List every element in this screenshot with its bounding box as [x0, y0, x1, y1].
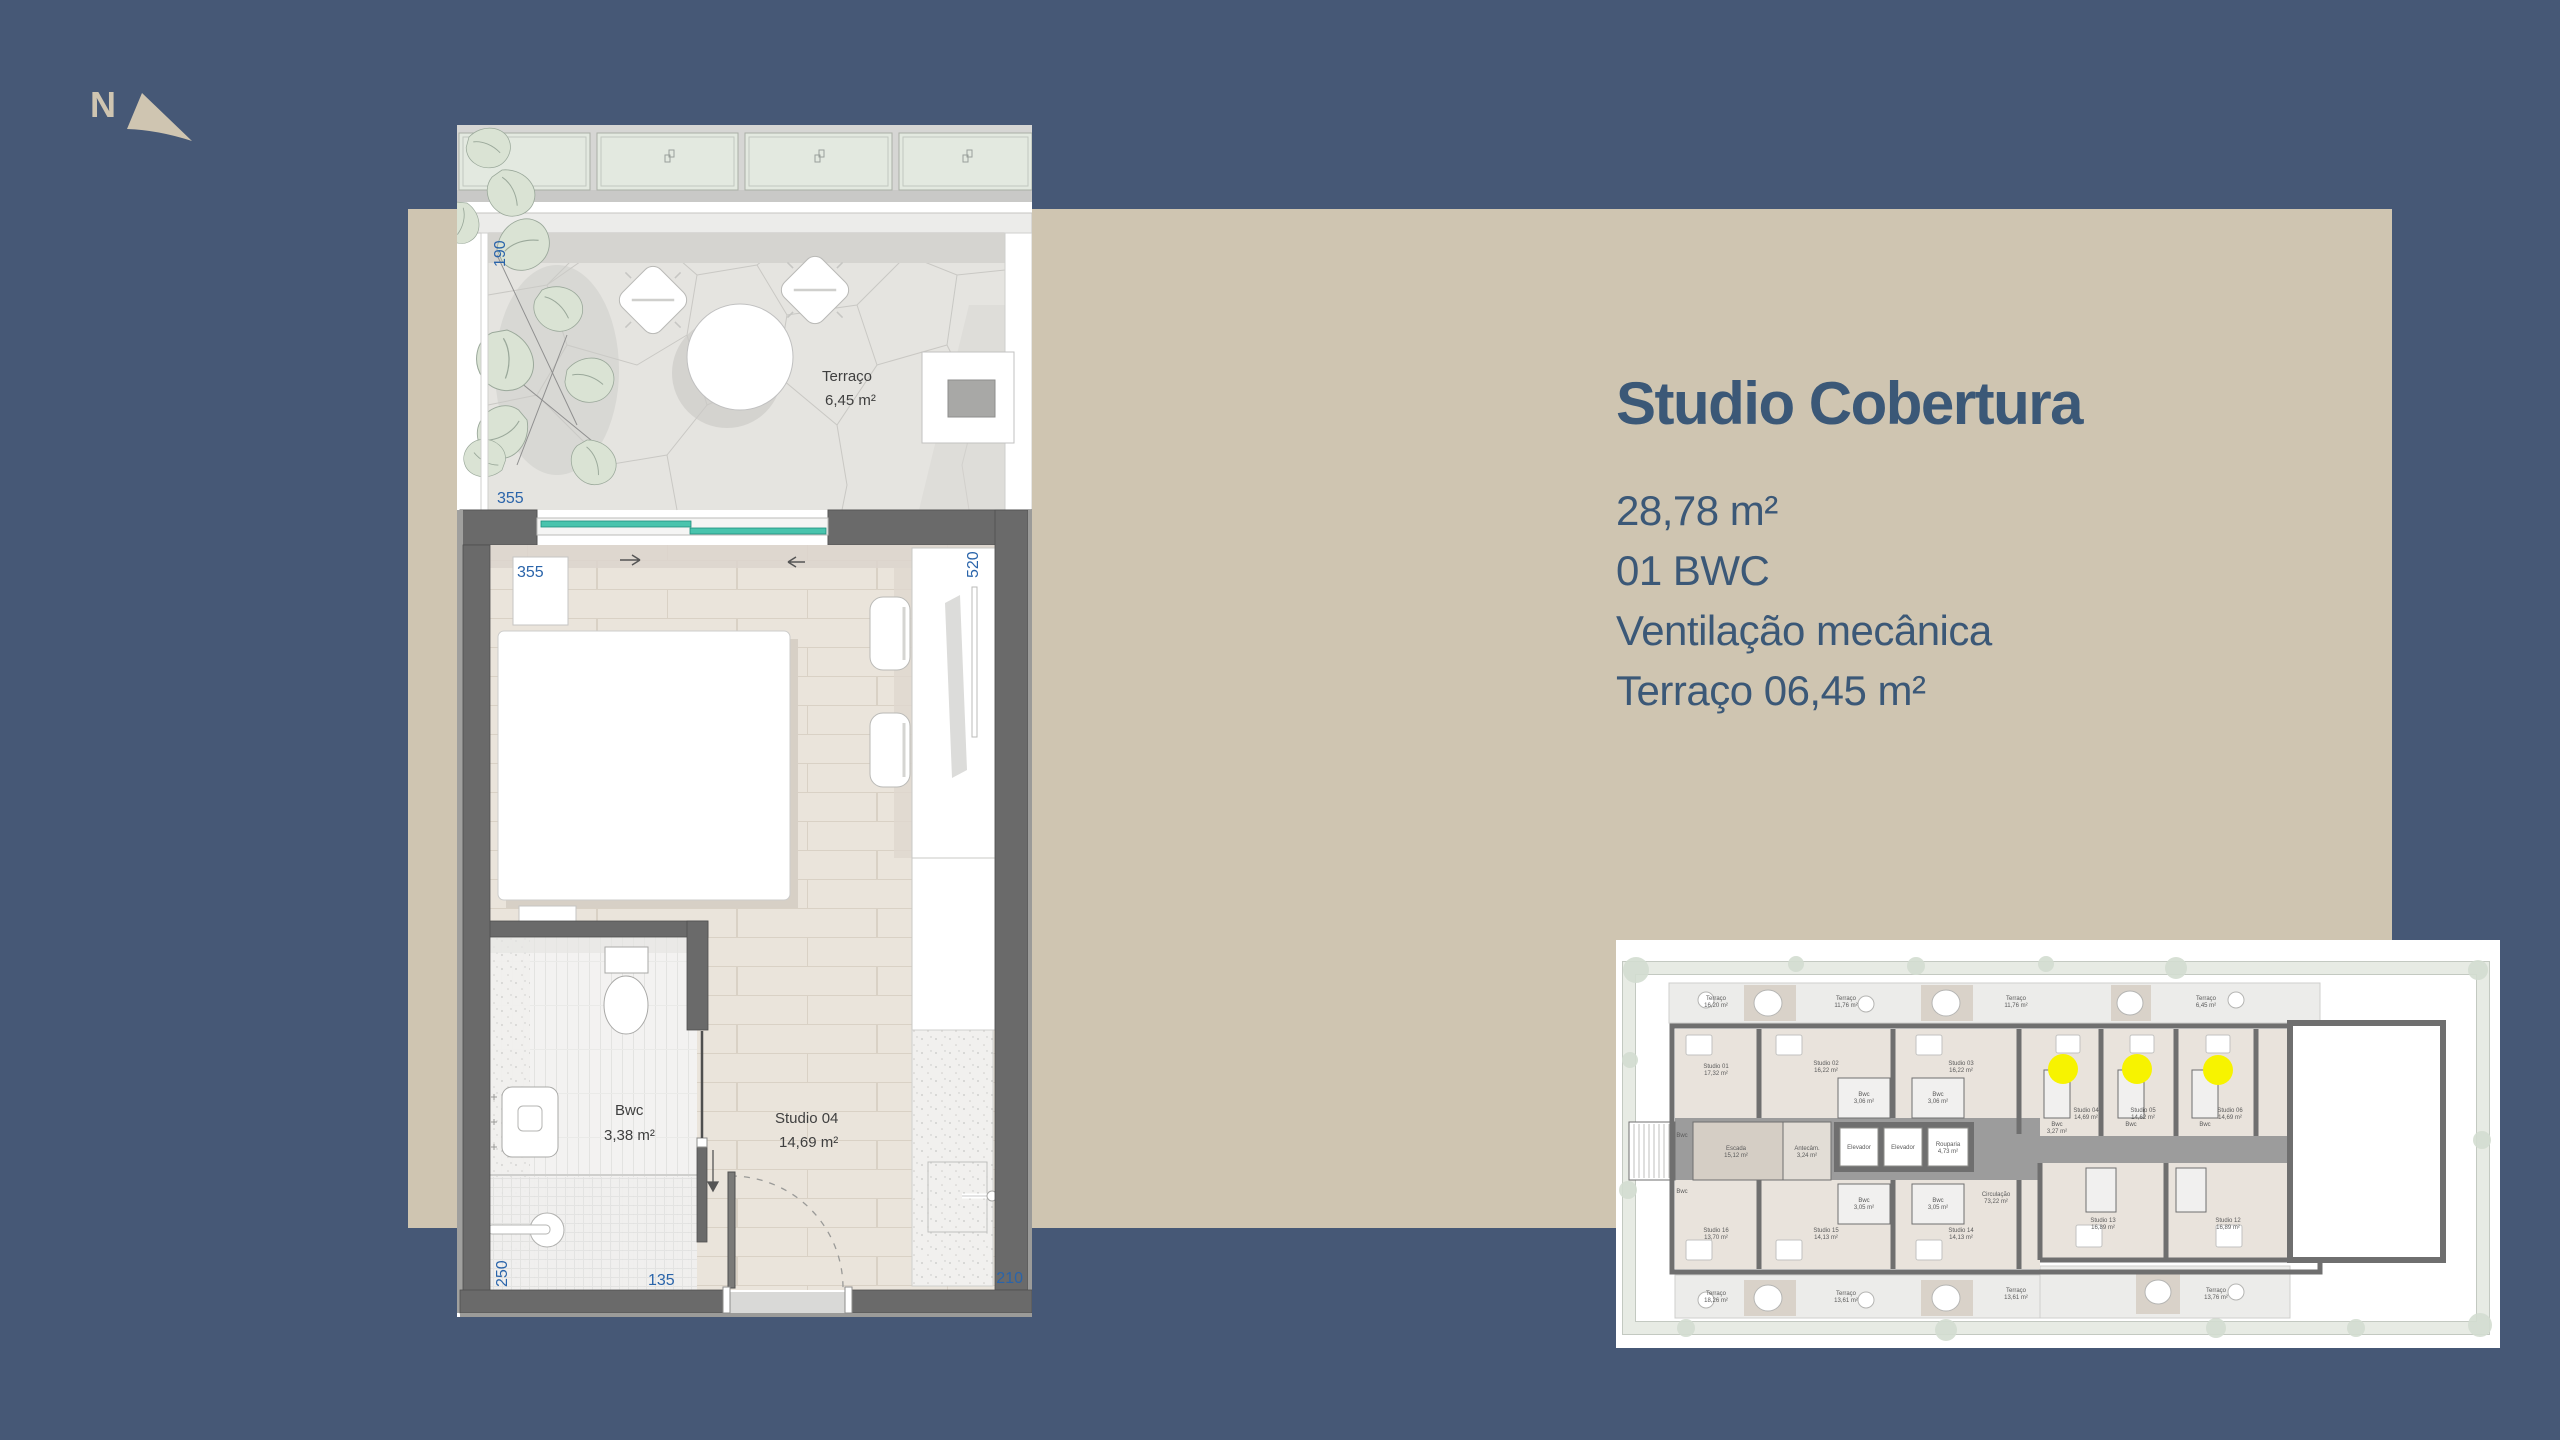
slide: { "colors": { "background": "#465876", "… [0, 0, 2560, 1440]
svg-text:3,06 m²: 3,06 m² [1854, 1099, 1874, 1105]
shelf-rail [972, 587, 977, 737]
svg-text:Elevador: Elevador [1891, 1145, 1915, 1151]
mini-rooftop [2290, 1023, 2443, 1260]
mini-room-label: Studio 13 [2090, 1218, 2116, 1224]
floor-plan: Terraço 6,45 m² 190 355 [457, 125, 1032, 1317]
north-label: N [90, 84, 116, 125]
glass-pane [541, 521, 691, 527]
dim-room-width: 355 [517, 564, 544, 581]
svg-text:Escada: Escada [1726, 1146, 1747, 1152]
svg-text:Bwc: Bwc [1676, 1189, 1687, 1195]
svg-text:11,76 m²: 11,76 m² [2004, 1003, 2027, 1009]
bwc-name-label: Bwc [615, 1102, 644, 1119]
svg-text:16,22 m²: 16,22 m² [1814, 1068, 1838, 1074]
mini-room-label: Studio 14 [1948, 1228, 1974, 1234]
glass-pane [690, 528, 826, 534]
svg-text:Bwc: Bwc [2051, 1122, 2062, 1128]
dim-bwc-width: 135 [648, 1272, 675, 1289]
svg-text:Terraço: Terraço [1836, 996, 1857, 1002]
desk-chair [870, 597, 910, 670]
svg-text:Rouparia: Rouparia [1936, 1142, 1961, 1148]
svg-text:Terraço: Terraço [2006, 996, 2027, 1002]
mini-floorplan: Studio 01 17,32 m² Studio 02 16,22 m² St… [1616, 940, 2500, 1348]
svg-text:15,12 m²: 15,12 m² [1724, 1153, 1748, 1159]
svg-text:Elevador: Elevador [1847, 1145, 1871, 1151]
bathroom: Bwc 3,38 m² 250 135 [488, 937, 697, 1290]
svg-text:Terraço: Terraço [2206, 1288, 2227, 1294]
highlight-dot-studio06 [2203, 1055, 2233, 1085]
svg-text:Bwc: Bwc [1932, 1198, 1943, 1204]
svg-text:6,45 m²: 6,45 m² [2196, 1003, 2216, 1009]
svg-text:16,89 m²: 16,89 m² [2216, 1225, 2240, 1231]
svg-text:17,32 m²: 17,32 m² [1704, 1071, 1728, 1077]
door-jamb [697, 1138, 707, 1147]
pergola-louver-band [457, 125, 1032, 202]
highlight-dot-studio04 [2048, 1054, 2078, 1084]
dim-terrace-width: 355 [497, 490, 524, 507]
dim-terrace-depth: 190 [492, 240, 509, 267]
svg-text:Circulação: Circulação [1982, 1192, 2011, 1198]
svg-text:3,05 m²: 3,05 m² [1928, 1205, 1948, 1211]
desk-counter [912, 548, 995, 858]
mini-room-label: Studio 16 [1703, 1228, 1729, 1234]
svg-text:Bwc: Bwc [2125, 1122, 2136, 1128]
svg-text:3,05 m²: 3,05 m² [1854, 1205, 1874, 1211]
mini-room-label: Studio 12 [2215, 1218, 2241, 1224]
shower-niche [912, 1030, 997, 1286]
svg-text:Terraço: Terraço [1836, 1291, 1857, 1297]
svg-text:13,70 m²: 13,70 m² [1704, 1235, 1728, 1241]
svg-text:3,06 m²: 3,06 m² [1928, 1099, 1948, 1105]
svg-text:Bwc: Bwc [1858, 1092, 1869, 1098]
unit-title: Studio Cobertura [1616, 372, 2376, 435]
north-compass: N [55, 25, 215, 155]
unit-specs: 28,78 m² 01 BWC Ventilação mecânica Terr… [1616, 481, 2376, 721]
dim-bwc-depth: 250 [494, 1260, 511, 1287]
svg-text:14,69 m²: 14,69 m² [2074, 1115, 2098, 1121]
svg-text:14,13 m²: 14,13 m² [1814, 1235, 1838, 1241]
mini-room-label: Studio 03 [1948, 1061, 1974, 1067]
svg-text:13,61 m²: 13,61 m² [2004, 1295, 2028, 1301]
terrace-table [687, 304, 793, 410]
svg-text:11,76 m²: 11,76 m² [1834, 1003, 1857, 1009]
north-arrow-icon [127, 93, 192, 141]
mini-room-label: Studio 15 [1813, 1228, 1839, 1234]
svg-text:16,89 m²: 16,89 m² [2091, 1225, 2115, 1231]
mini-room-label: Studio 02 [1813, 1061, 1839, 1067]
unit-info: Studio Cobertura 28,78 m² 01 BWC Ventila… [1616, 372, 2376, 721]
terrace-name-label: Terraço [822, 368, 872, 385]
svg-text:3,24 m²: 3,24 m² [1797, 1153, 1817, 1159]
svg-text:16,22 m²: 16,22 m² [1949, 1068, 1973, 1074]
mini-room-label: Studio 04 [2073, 1108, 2099, 1114]
dim-closet-width: 210 [996, 1270, 1023, 1287]
glass-louver-panels [459, 133, 1032, 190]
svg-text:14,62 m²: 14,62 m² [2131, 1115, 2155, 1121]
toilet [604, 947, 648, 1034]
svg-text:Bwc: Bwc [2199, 1122, 2210, 1128]
svg-text:Bwc: Bwc [1676, 1133, 1687, 1139]
studio-name-label: Studio 04 [775, 1110, 838, 1127]
highlight-dot-studio05 [2122, 1054, 2152, 1084]
svg-text:13,76 m²: 13,76 m² [2204, 1295, 2228, 1301]
svg-text:16,20 m²: 16,20 m² [1704, 1003, 1728, 1009]
bed [498, 631, 790, 900]
dim-room-depth: 520 [965, 551, 982, 578]
svg-text:13,61 m²: 13,61 m² [1834, 1298, 1858, 1304]
grab-bar [488, 1225, 550, 1234]
svg-text:Terraço: Terraço [1706, 996, 1727, 1002]
svg-text:14,13 m²: 14,13 m² [1949, 1235, 1973, 1241]
bwc-area-label: 3,38 m² [604, 1127, 655, 1144]
spec-bwc: 01 BWC [1616, 541, 2376, 601]
svg-text:Terraço: Terraço [2196, 996, 2217, 1002]
svg-text:3,27 m²: 3,27 m² [2047, 1129, 2067, 1135]
svg-text:Bwc: Bwc [1932, 1092, 1943, 1098]
svg-text:18,26 m²: 18,26 m² [1704, 1298, 1728, 1304]
studio-area-label: 14,69 m² [779, 1134, 838, 1151]
svg-text:Terraço: Terraço [2006, 1288, 2027, 1294]
mini-room-label: Studio 01 [1703, 1064, 1729, 1070]
spec-area: 28,78 m² [1616, 481, 2376, 541]
svg-text:14,69 m²: 14,69 m² [2218, 1115, 2242, 1121]
mini-room-label: Studio 06 [2217, 1108, 2243, 1114]
svg-text:73,22 m²: 73,22 m² [1984, 1199, 2008, 1205]
svg-text:4,73 m²: 4,73 m² [1938, 1149, 1958, 1155]
terrace-area-label: 6,45 m² [825, 392, 876, 409]
svg-text:Terraço: Terraço [1706, 1291, 1727, 1297]
entry-threshold [723, 1292, 852, 1313]
mini-room-label: Studio 05 [2130, 1108, 2156, 1114]
spec-terrace: Terraço 06,45 m² [1616, 661, 2376, 721]
svg-text:Bwc: Bwc [1858, 1198, 1869, 1204]
svg-text:Antecâm.: Antecâm. [1794, 1146, 1820, 1152]
terrace-alcove [922, 352, 1014, 443]
spec-ventilation: Ventilação mecânica [1616, 601, 2376, 661]
wardrobe [912, 858, 995, 1030]
desk-chair [870, 713, 910, 787]
